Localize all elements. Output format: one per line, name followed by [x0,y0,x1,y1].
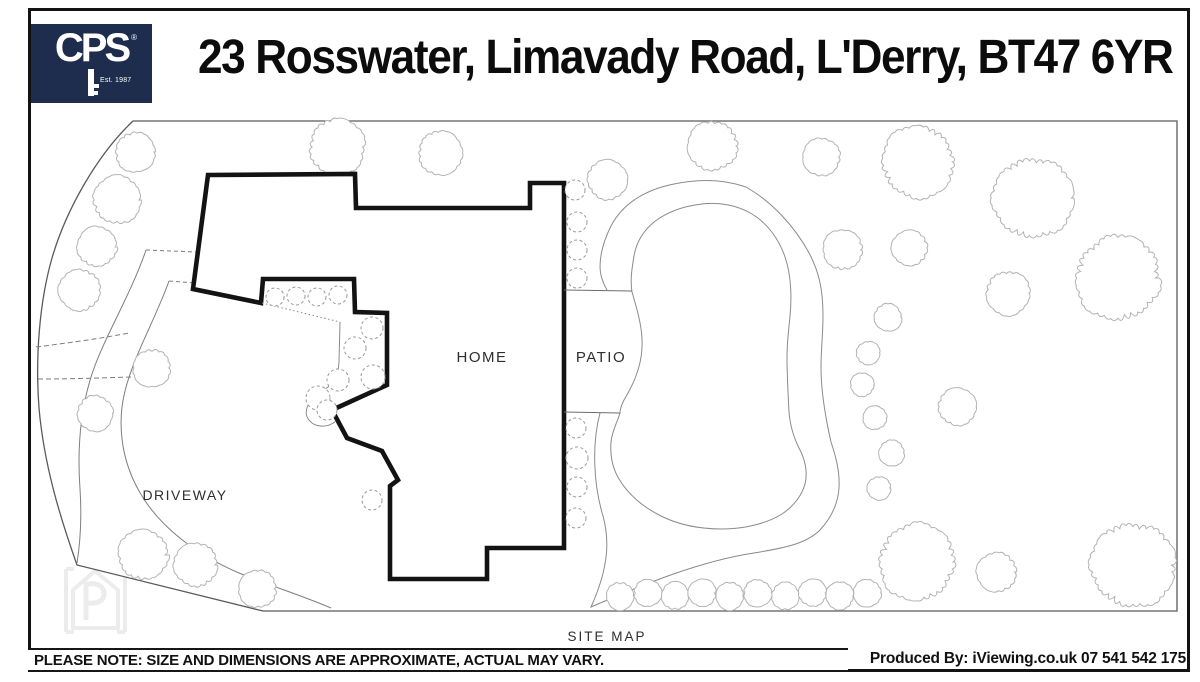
shrub-icon [565,180,585,200]
tree-icon [607,583,635,611]
shrub-icon [566,508,586,528]
tree-icon [744,580,772,607]
tree-icon [133,349,171,386]
shrub-icon [566,447,588,469]
tree-icon [772,582,799,610]
produced-by-text: Produced By: iViewing.co.uk 07 541 542 1… [870,650,1186,668]
tree-icon [823,230,863,270]
shrub-icon [361,317,383,339]
label-driveway: DRIVEWAY [142,487,227,503]
label-patio: PATIO [576,349,626,366]
tree-icon [798,579,826,606]
tree-icon [634,579,662,606]
tree-icon [867,477,891,501]
shrub-icon [567,240,587,260]
shrub-icon [567,268,587,288]
tree-icon [419,130,463,175]
tree-icon [661,581,689,609]
shrub-icon [344,337,366,359]
shrub-icon [327,369,349,391]
tree-icon [116,132,156,172]
label-home: HOME [457,349,508,366]
disclaimer-text: PLEASE NOTE: SIZE AND DIMENSIONS ARE APP… [28,652,604,669]
shrub-icon [566,418,586,438]
shrub-icon [329,286,347,304]
site-plan-svg: HOME PATIO DRIVEWAY SITE MAP [0,0,1200,682]
tree-icon [239,570,277,607]
watermark-logo [66,569,125,632]
tree-icon [688,579,716,607]
tree-icon [716,582,744,610]
tree-icon [854,579,882,607]
tree-icon [826,582,854,610]
shrub-icon [361,365,385,389]
tree-icon [874,303,902,331]
shrub-icon [308,288,326,306]
tree-icon [850,373,874,397]
shrub-icon [317,400,337,420]
tree-icon [879,440,905,466]
shrub-icon [362,490,382,510]
disclaimer-bar: PLEASE NOTE: SIZE AND DIMENSIONS ARE APP… [28,648,848,672]
tree-icon [863,406,887,430]
shrub-icon [266,288,284,306]
label-site-map: SITE MAP [567,629,646,644]
shrub-icon [567,477,587,497]
tree-icon [856,341,880,365]
shrub-icon [567,212,587,232]
shrub-icon [287,287,305,305]
site-map-page: CPS ® Est. 1987 23 Rosswater, Limavady R… [0,0,1200,682]
